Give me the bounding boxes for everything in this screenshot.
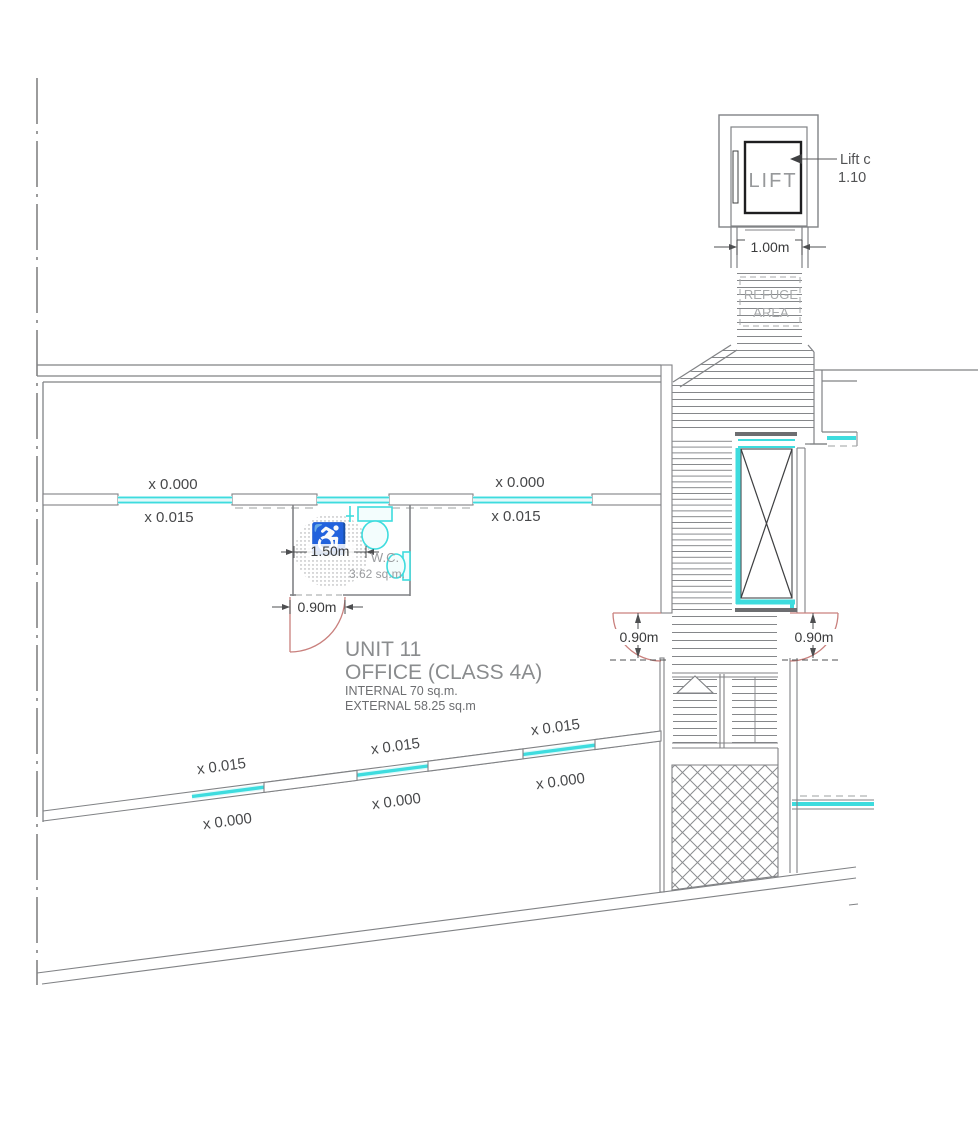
exit-door-left-dim-text: 0.90m bbox=[620, 629, 659, 645]
neighbour-unit-walls bbox=[792, 370, 978, 809]
level-label: x 0.015 bbox=[196, 755, 247, 778]
level-label: x 0.015 bbox=[144, 509, 193, 526]
exit-door-right-dim-text: 0.90m bbox=[795, 629, 834, 645]
refuge-area: REFUGE AREA bbox=[740, 277, 800, 326]
lobby-dim-text: 1.00m bbox=[751, 239, 790, 255]
office-walls bbox=[43, 365, 672, 892]
level-label: x 0.015 bbox=[530, 716, 581, 739]
wc-door-dim-text: 0.90m bbox=[298, 599, 337, 615]
wc-door-dimension: 0.90m bbox=[272, 599, 363, 615]
lift-note-line2: 1.10 bbox=[838, 170, 866, 186]
unit-title-block: UNIT 11 OFFICE (CLASS 4A) INTERNAL 70 sq… bbox=[345, 638, 542, 713]
stair-flight-wide bbox=[672, 382, 814, 433]
wc-label: W.C. bbox=[371, 550, 399, 565]
exit-door-left: 0.90m bbox=[610, 613, 668, 661]
exit-door-right: 0.90m bbox=[782, 613, 840, 661]
upper-terrace-wall bbox=[37, 365, 661, 382]
level-label: x 0.000 bbox=[495, 474, 544, 491]
south-wall: x 0.015 x 0.000 x 0.015 x 0.000 x 0.015 … bbox=[43, 716, 661, 833]
wc-room: ♿ 1.50m W.C. 3.62 sq.m. bbox=[272, 505, 410, 652]
level-label: x 0.015 bbox=[370, 735, 421, 758]
refuge-label-line2: AREA bbox=[753, 305, 789, 320]
turning-circle-dim-text: 1.50m bbox=[311, 543, 350, 559]
lift-door bbox=[733, 151, 738, 203]
unit-use-class: OFFICE (CLASS 4A) bbox=[345, 661, 542, 684]
neighbour-window-lower bbox=[792, 796, 874, 809]
east-wall bbox=[660, 365, 672, 892]
stair-split-flight bbox=[672, 673, 778, 765]
refuge-label-line1: REFUGE bbox=[744, 287, 799, 302]
unit-internal-area: INTERNAL 70 sq.m. bbox=[345, 684, 458, 698]
void-shaft bbox=[735, 434, 797, 612]
unit-title: UNIT 11 bbox=[345, 638, 421, 661]
lift-block: LIFT Lift c 1.10 bbox=[719, 115, 871, 227]
floor-plan-drawing: x 0.000 x 0.000 x 0.015 x 0.015 ♿ bbox=[0, 0, 978, 1147]
level-label: x 0.000 bbox=[371, 790, 422, 813]
unit-external-area: EXTERNAL 58.25 sq.m bbox=[345, 699, 476, 713]
lift-note-line1: Lift c bbox=[840, 152, 871, 168]
floor-plan-page: x 0.000 x 0.000 x 0.015 x 0.015 ♿ bbox=[0, 0, 978, 1147]
wc-area-label: 3.62 sq.m. bbox=[349, 567, 405, 581]
level-label: x 0.000 bbox=[535, 770, 586, 793]
void-crosshatch-area bbox=[672, 765, 778, 890]
north-wall-windows bbox=[118, 496, 592, 504]
lift-label: LIFT bbox=[748, 170, 797, 192]
south-wall-piers bbox=[264, 731, 661, 792]
south-wall-level-labels: x 0.015 x 0.000 x 0.015 x 0.000 x 0.015 … bbox=[196, 716, 586, 833]
lift-lobby-dimension: 1.00m bbox=[714, 227, 826, 268]
level-label: x 0.015 bbox=[491, 508, 540, 525]
level-label: x 0.000 bbox=[148, 476, 197, 493]
stair-flight-lower bbox=[672, 614, 777, 668]
terrace-outline bbox=[37, 867, 858, 984]
stair-flight-mid bbox=[672, 437, 732, 610]
level-label: x 0.000 bbox=[202, 810, 253, 833]
neighbour-window-top bbox=[810, 438, 857, 446]
